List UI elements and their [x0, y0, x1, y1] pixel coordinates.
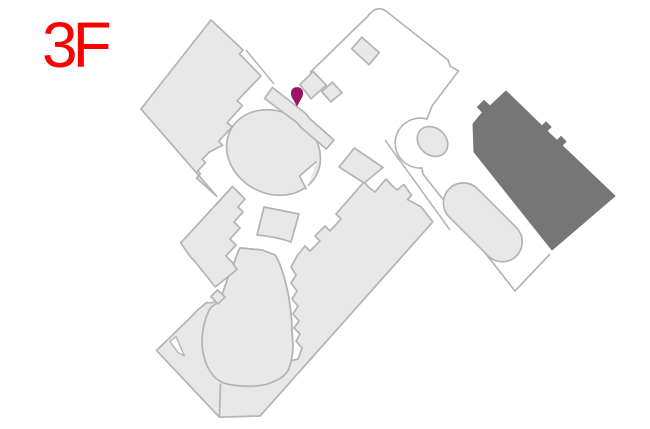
svg-text:3F: 3F	[42, 9, 110, 81]
